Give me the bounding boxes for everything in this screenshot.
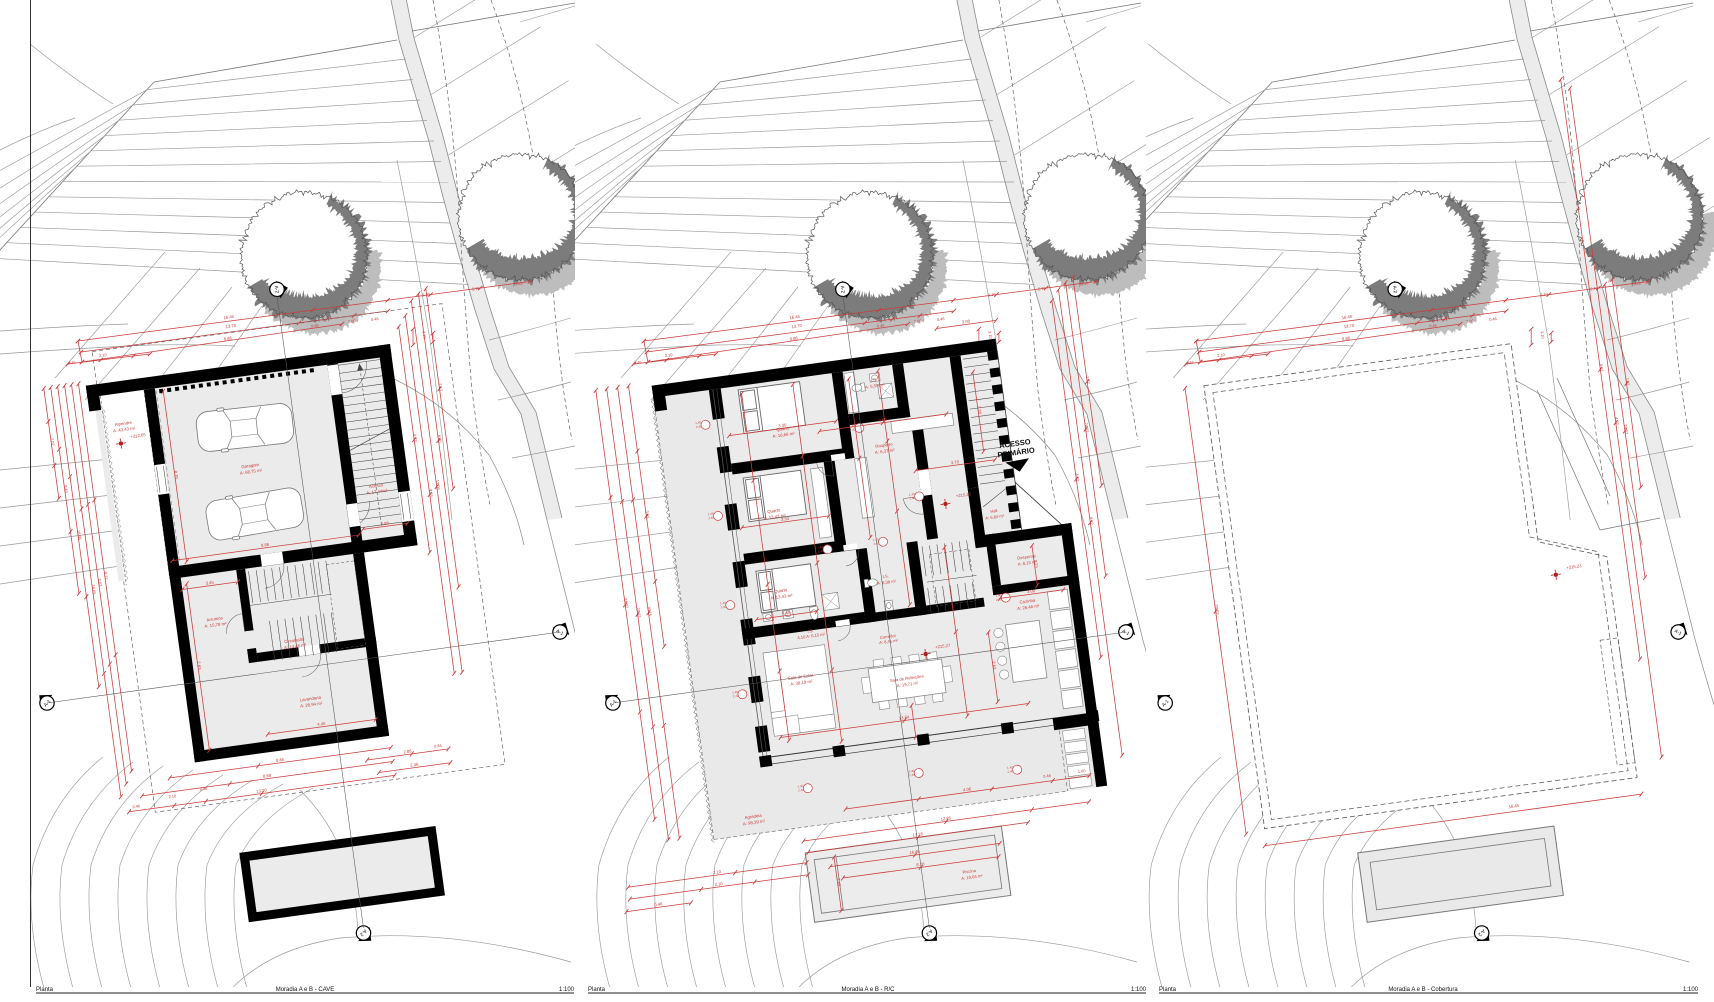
svg-text:2.40: 2.40 bbox=[696, 424, 703, 429]
svg-text:2.40: 2.40 bbox=[909, 773, 916, 778]
svg-text:2.40: 2.40 bbox=[909, 496, 916, 501]
svg-text:Planta: Planta bbox=[588, 987, 606, 993]
svg-text:0.46: 0.46 bbox=[132, 803, 140, 809]
svg-text:I.S.: I.S. bbox=[870, 377, 877, 383]
svg-text:2.40: 2.40 bbox=[708, 515, 715, 520]
svg-text:1:100: 1:100 bbox=[1131, 987, 1147, 993]
svg-text:Moradia A e B - Cobertura: Moradia A e B - Cobertura bbox=[1388, 987, 1458, 993]
svg-text:2.40: 2.40 bbox=[818, 549, 825, 554]
svg-text:2.40: 2.40 bbox=[798, 788, 805, 793]
svg-text:0.46: 0.46 bbox=[200, 786, 208, 792]
svg-text:Planta: Planta bbox=[1159, 987, 1177, 993]
svg-text:Moradia A e B - R/C: Moradia A e B - R/C bbox=[841, 987, 895, 993]
svg-text:1:100: 1:100 bbox=[1683, 987, 1699, 993]
svg-text:1:100: 1:100 bbox=[559, 987, 575, 993]
svg-text:I.S.: I.S. bbox=[882, 573, 889, 579]
svg-text:Planta: Planta bbox=[36, 987, 54, 993]
svg-text:2.40: 2.40 bbox=[720, 605, 727, 610]
svg-text:2.40: 2.40 bbox=[732, 694, 739, 699]
svg-text:Hall: Hall bbox=[990, 508, 998, 514]
svg-text:Moradia A e B - CAVE: Moradia A e B - CAVE bbox=[276, 987, 335, 993]
svg-text:2.40: 2.40 bbox=[1007, 769, 1014, 774]
